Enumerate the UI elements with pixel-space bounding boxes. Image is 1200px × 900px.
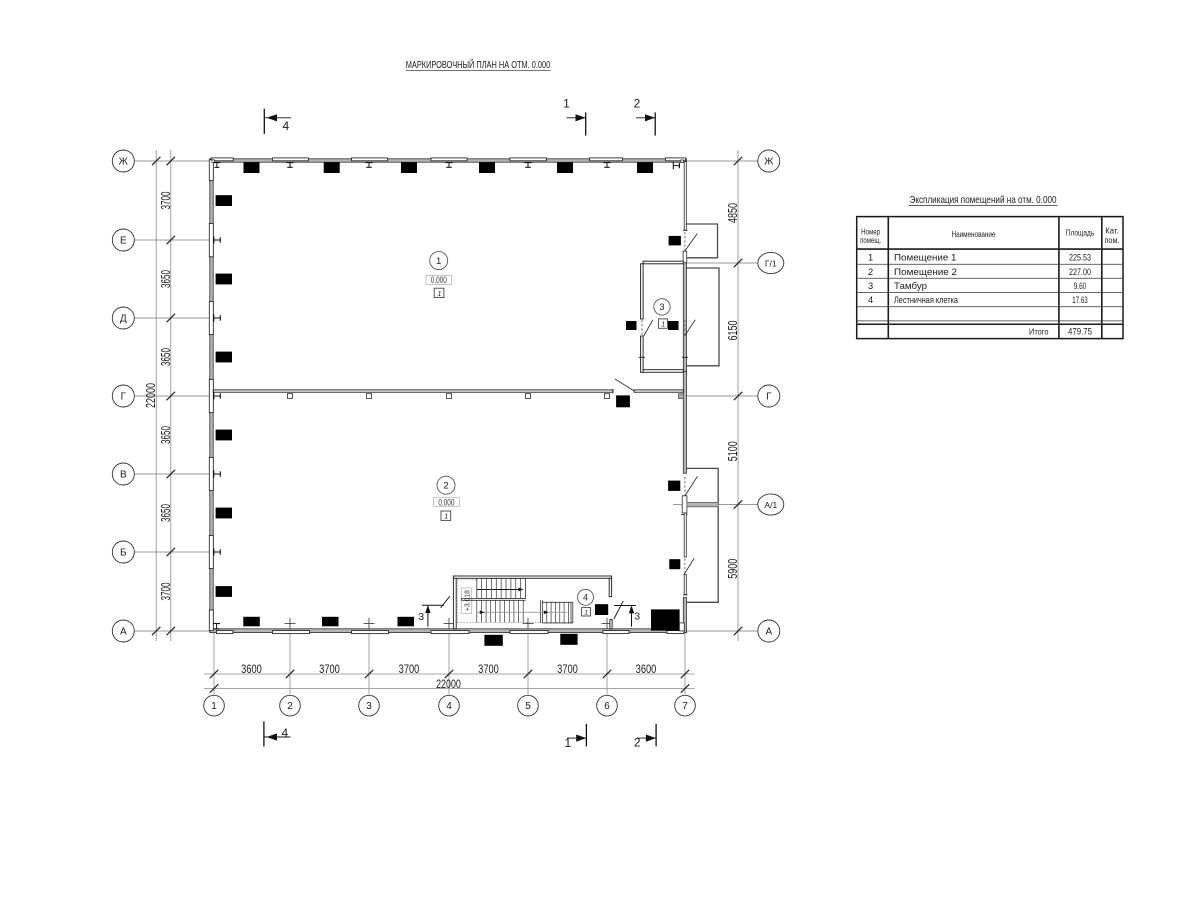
svg-text:3650: 3650 [158,504,173,522]
svg-text:Г/1: Г/1 [765,258,777,268]
svg-text:4: 4 [446,701,452,712]
svg-text:3700: 3700 [478,662,499,676]
svg-text:3: 3 [418,611,424,623]
svg-text:Г: Г [766,392,772,403]
svg-text:17.63: 17.63 [1072,295,1088,305]
svg-text:Экспликация помещений на отм.: Экспликация помещений на отм. 0.000 [910,194,1057,206]
svg-text:1: 1 [437,291,441,298]
svg-text:Кат.: Кат. [1105,227,1119,236]
svg-text:225.53: 225.53 [1069,253,1091,263]
svg-text:3600: 3600 [241,662,262,676]
svg-text:А: А [120,627,127,638]
svg-text:А: А [765,627,772,638]
svg-text:1: 1 [564,736,571,750]
svg-text:6: 6 [604,701,610,712]
svg-text:6150: 6150 [726,320,740,340]
svg-text:3650: 3650 [158,270,173,288]
svg-text:22000: 22000 [436,677,461,691]
svg-text:479.75: 479.75 [1068,326,1092,336]
svg-text:Площадь: Площадь [1066,228,1095,238]
svg-text:3: 3 [659,302,664,312]
svg-text:Е: Е [120,236,127,247]
svg-text:2: 2 [443,481,448,492]
svg-text:5900: 5900 [726,559,740,579]
svg-text:0.000: 0.000 [431,275,447,285]
svg-text:Наименование: Наименование [952,229,996,239]
svg-text:пом.: пом. [1105,236,1120,245]
svg-text:3700: 3700 [158,192,173,210]
svg-text:Итого: Итого [1029,327,1049,337]
svg-text:3700: 3700 [158,583,173,601]
svg-text:1: 1 [563,97,570,111]
svg-text:4: 4 [282,726,289,740]
svg-text:1: 1 [211,701,217,712]
svg-text:3700: 3700 [319,662,340,676]
svg-text:4: 4 [868,295,873,305]
svg-text:4850: 4850 [726,203,740,223]
svg-text:А/1: А/1 [764,500,777,510]
svg-text:Б: Б [120,548,127,559]
svg-text:Номер: Номер [861,228,880,237]
svg-text:Помещение 2: Помещение 2 [894,267,957,277]
svg-text:Лестничная клетка: Лестничная клетка [894,295,958,305]
svg-text:Д: Д [120,314,127,325]
svg-text:1: 1 [444,514,448,521]
svg-text:0.000: 0.000 [438,498,454,508]
svg-text:2: 2 [634,97,641,111]
svg-text:2: 2 [634,736,641,750]
svg-text:Ж: Ж [119,157,129,168]
svg-text:3650: 3650 [158,348,173,366]
svg-text:5: 5 [525,701,531,712]
svg-text:3600: 3600 [636,662,657,676]
svg-text:2: 2 [287,701,293,712]
svg-text:3: 3 [366,701,372,712]
svg-text:4: 4 [282,119,289,133]
svg-text:9.60: 9.60 [1074,281,1087,291]
svg-text:помещ.: помещ. [860,236,881,245]
svg-text:4: 4 [583,593,588,603]
svg-text:1: 1 [661,322,665,329]
svg-text:3700: 3700 [557,662,578,676]
svg-text:1: 1 [436,256,441,267]
svg-text:7: 7 [682,701,688,712]
svg-text:3650: 3650 [158,426,173,444]
svg-text:1: 1 [868,253,873,263]
svg-text:2: 2 [868,267,873,277]
svg-text:22000: 22000 [143,383,158,408]
svg-text:Помещение 1: Помещение 1 [894,253,957,263]
svg-text:Тамбур: Тамбур [894,281,927,291]
svg-text:227.00: 227.00 [1069,267,1091,277]
svg-text:3700: 3700 [399,662,420,676]
svg-text:МАРКИРОВОЧНЫЙ ПЛАН НА ОТМ. 0.0: МАРКИРОВОЧНЫЙ ПЛАН НА ОТМ. 0.000 [406,58,551,71]
svg-text:Ж: Ж [764,157,774,168]
svg-text:1: 1 [584,610,588,617]
svg-text:3: 3 [868,281,873,291]
svg-text:3: 3 [634,611,640,623]
svg-text:5100: 5100 [726,441,740,461]
svg-text:В: В [120,470,127,481]
svg-text:Г: Г [121,392,127,403]
